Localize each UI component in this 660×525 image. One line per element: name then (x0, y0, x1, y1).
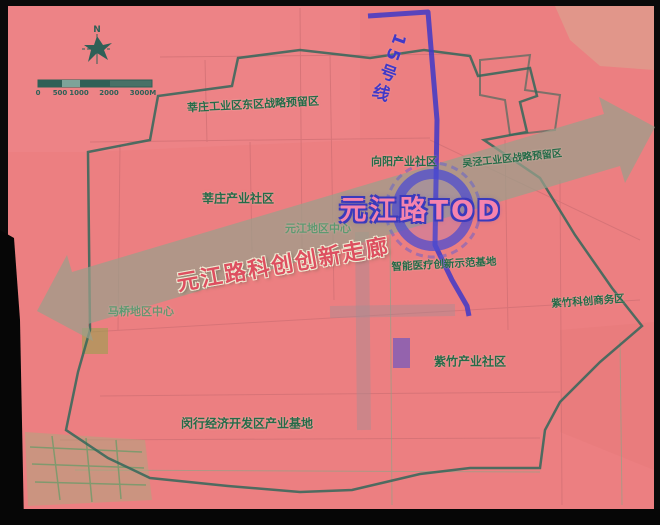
tone-patch-topleft (8, 6, 360, 152)
tod-title: 元江路TOD (340, 189, 503, 228)
scale-label-3000: 3000M (130, 89, 156, 97)
scale-label-1000: 1000 (69, 89, 88, 97)
label-xinzhuang-community: 莘庄产业社区 (202, 190, 274, 207)
label-minhang-dev-base: 闵行经济开发区产业基地 (181, 415, 313, 432)
purple-parcel (393, 338, 410, 368)
label-maqiao-center: 马桥地区中心 (108, 303, 174, 319)
scale-bar (38, 80, 152, 87)
map-screenshot: N 0 500 1000 2000 3000M 15号线 莘庄工业区东区战略预留… (0, 0, 660, 525)
label-xiangyang-community: 向阳产业社区 (371, 153, 437, 169)
scale-label-2000: 2000 (99, 89, 118, 97)
scale-label-0: 0 (36, 89, 41, 97)
label-zizhu-community: 紫竹产业社区 (434, 353, 506, 370)
black-edge-bottom (0, 509, 660, 525)
scale-label-500: 500 (53, 89, 68, 97)
compass-north-label: N (93, 25, 101, 35)
gray-road-horizontal (330, 310, 455, 312)
